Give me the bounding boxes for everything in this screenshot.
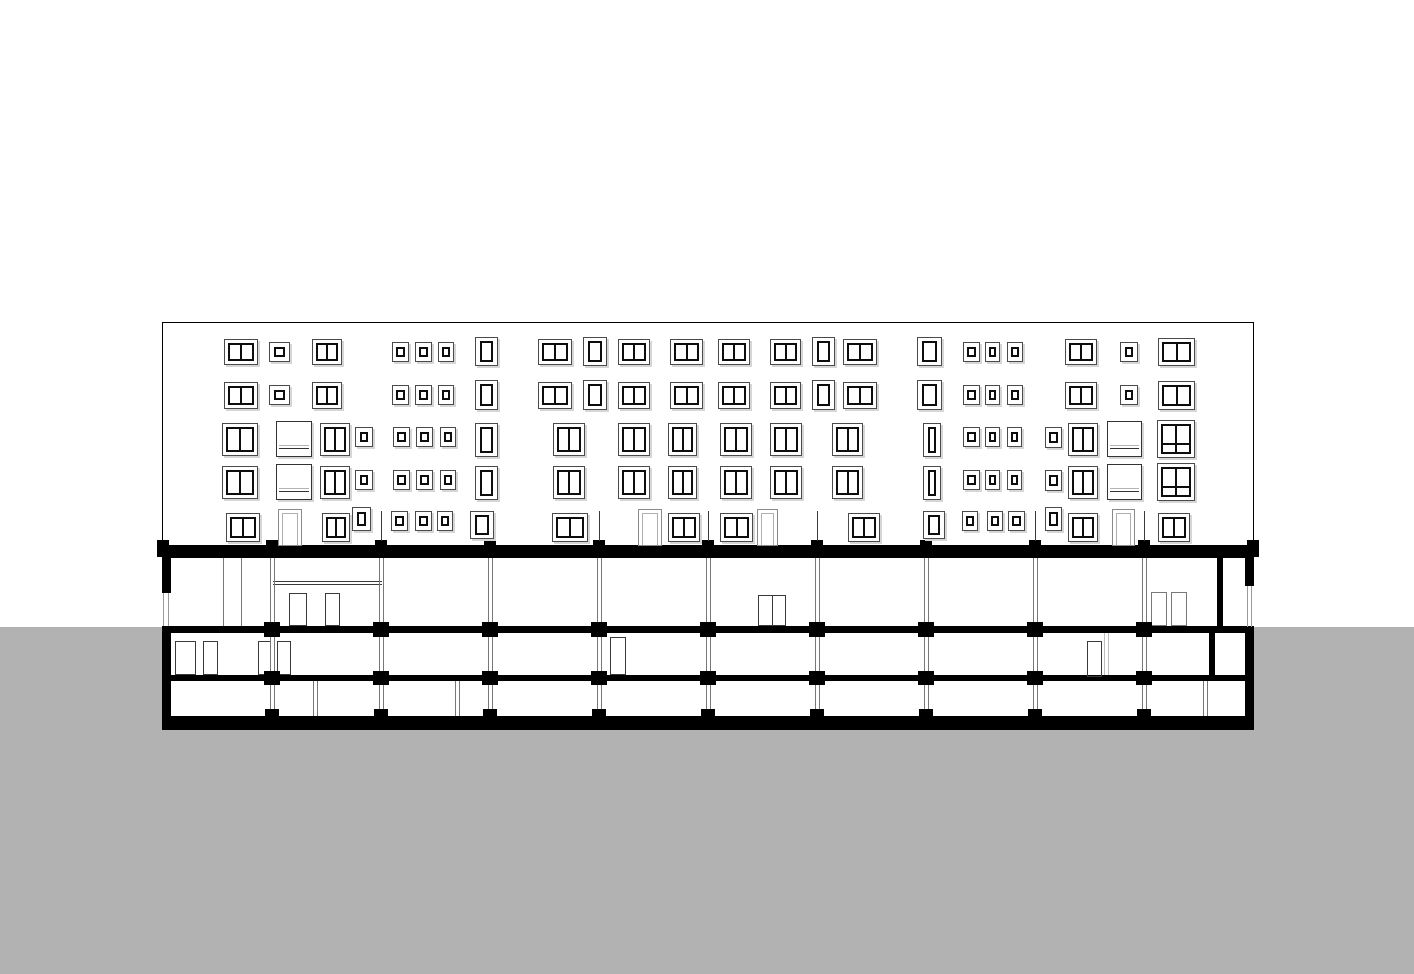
window-pane (1012, 516, 1020, 527)
window-double (1068, 423, 1098, 456)
facade-joint-tick (599, 511, 600, 541)
drawing-canvas (0, 0, 1414, 974)
column-capital (1027, 671, 1043, 685)
window-tall (917, 337, 942, 366)
gf-double-door-leaf (772, 595, 773, 626)
window-pane (442, 347, 450, 358)
facade-base-pier (266, 540, 278, 557)
window-pane (774, 386, 797, 405)
window-pane (360, 475, 369, 486)
right-wall-door-line (1247, 586, 1248, 627)
window-small (1007, 427, 1022, 447)
column (815, 558, 820, 626)
facade-base-pier (702, 540, 714, 557)
window-pane (279, 491, 309, 492)
window-pane (967, 347, 975, 358)
window-pane (542, 386, 568, 405)
window-pane (397, 432, 405, 443)
window-small (269, 385, 290, 405)
window-pane (674, 343, 699, 361)
window-pane (1011, 390, 1019, 401)
b1-door (175, 641, 196, 675)
gf-partition-line (241, 558, 242, 626)
window-double (312, 339, 342, 365)
window-pane (1116, 513, 1131, 545)
window-pane (324, 470, 346, 495)
window-small (1045, 427, 1062, 448)
column-capital (1027, 622, 1043, 637)
window-double (553, 466, 585, 499)
window-pane (967, 432, 975, 443)
column (815, 633, 820, 675)
window-pane (230, 517, 256, 538)
column-capital (918, 622, 934, 637)
window-double (224, 339, 258, 365)
column (1033, 633, 1038, 675)
column-capital (373, 622, 389, 637)
window-double (720, 423, 752, 456)
column (597, 558, 602, 626)
window-pane (922, 341, 937, 362)
window-pane (444, 475, 452, 486)
window-double (222, 466, 258, 499)
window-small (437, 511, 453, 531)
window-pane (542, 343, 568, 361)
window-small (393, 427, 410, 447)
window-pane (622, 386, 646, 405)
window-pane (928, 515, 940, 535)
window-double (553, 423, 585, 456)
column-capital (591, 622, 607, 637)
window-small (1007, 385, 1023, 405)
column (1033, 558, 1038, 626)
window-double (670, 382, 703, 409)
window-double (618, 339, 650, 365)
window-double (320, 466, 350, 499)
window-pane (1162, 385, 1191, 406)
window-double (718, 382, 750, 409)
window-double (618, 466, 650, 499)
window-small (985, 427, 1000, 447)
b2-partition-line (455, 681, 460, 716)
column-capital (483, 709, 497, 716)
window-pane (226, 470, 254, 495)
window-small (415, 342, 432, 362)
gf-partition-wall (1217, 558, 1223, 626)
window-tall (917, 380, 942, 410)
window-pane (836, 470, 859, 495)
column-capital (919, 709, 933, 716)
window-double (1068, 513, 1098, 542)
window-double (1065, 339, 1097, 365)
window-small (985, 342, 1000, 362)
window-tall (475, 423, 498, 457)
window-small (1007, 342, 1023, 362)
window-pane (420, 432, 428, 443)
facade-base-pier (811, 540, 823, 557)
window-double (222, 423, 258, 456)
b2-partition-line (1203, 681, 1208, 716)
window-double (720, 466, 752, 499)
window-double (538, 382, 572, 409)
window-pane (1161, 424, 1191, 454)
window-pane (480, 341, 493, 362)
window-pane (774, 343, 797, 361)
facade-joint-tick (1035, 511, 1036, 541)
window-pane (1072, 470, 1094, 495)
b1-partition-line (1104, 633, 1109, 675)
window-pane (419, 347, 427, 358)
column (270, 633, 275, 675)
window-door (757, 509, 778, 546)
window-small (985, 385, 1000, 405)
window-tall (583, 337, 607, 366)
window-pane (1011, 432, 1018, 443)
window-pane (588, 341, 602, 362)
window-pane (989, 390, 996, 401)
window-double (848, 513, 880, 542)
window-pane (397, 475, 405, 486)
foundation-slab (162, 716, 1254, 730)
window-pane (441, 516, 449, 527)
window-pane (928, 470, 936, 496)
window-small (440, 427, 456, 447)
window-double (832, 423, 863, 456)
window-pane (672, 517, 696, 538)
window-double (1158, 338, 1195, 366)
facade-joint-tick (1144, 511, 1145, 541)
window-pane (396, 347, 404, 358)
column-capital (700, 671, 716, 685)
facade-base-pier (920, 540, 932, 557)
window-double (668, 466, 697, 499)
window-tall (475, 466, 498, 500)
window-small (392, 385, 409, 405)
window-tall (812, 380, 835, 410)
window-pane (228, 386, 254, 405)
window-double (322, 513, 350, 542)
window-double (618, 423, 650, 456)
window-blank (1107, 464, 1142, 500)
column (924, 558, 929, 626)
gf-mezzanine-line (273, 584, 382, 585)
window-pane (274, 390, 285, 401)
window-pane (1011, 347, 1019, 358)
window-double (320, 423, 350, 456)
window-tall (923, 511, 945, 539)
facade-base-pier (157, 540, 169, 557)
window-pane (1161, 467, 1191, 497)
window-pane (1049, 475, 1057, 486)
window-pane (724, 427, 748, 452)
window-double (1158, 513, 1190, 542)
column-capital (374, 709, 388, 716)
window-pane (316, 343, 338, 361)
window-pane (1162, 342, 1191, 362)
window-double (668, 513, 700, 542)
window-double (1158, 381, 1195, 410)
window-pane (316, 386, 338, 405)
window-pane (1125, 347, 1134, 358)
window-pane (360, 432, 369, 443)
window-double (770, 339, 801, 365)
column (706, 558, 711, 626)
column-capital (1136, 622, 1152, 637)
window-small (415, 385, 432, 405)
window-pane (396, 390, 404, 401)
window-pane (967, 475, 975, 486)
window-double (1065, 382, 1097, 409)
facade-joint-tick (708, 511, 709, 541)
window-small (1120, 385, 1138, 405)
column (1142, 558, 1147, 626)
b1-partition-wall (1209, 633, 1215, 675)
window-pane (480, 384, 493, 406)
window-small (963, 385, 980, 405)
window-door (278, 509, 302, 546)
window-pane (420, 475, 428, 486)
column (270, 558, 275, 626)
window-pane (928, 427, 936, 453)
window-small (438, 385, 454, 405)
window-pane (1110, 448, 1139, 449)
window-double (770, 423, 802, 456)
window-pane (991, 516, 999, 527)
window-small (269, 342, 290, 362)
window-pane (847, 343, 873, 361)
window-pane (1072, 427, 1094, 452)
facade-base-pier (484, 540, 496, 557)
column-capital (264, 671, 280, 685)
window-door (638, 509, 662, 546)
window-pane (556, 517, 584, 538)
window-small (415, 511, 432, 531)
facade-joint-tick (381, 511, 382, 541)
facade-joint-tick (817, 511, 818, 541)
window-pane (761, 513, 774, 545)
left-wall-door-line (163, 593, 164, 626)
window-small (1008, 511, 1025, 531)
b1-door (1087, 641, 1102, 677)
window-pane (419, 516, 427, 527)
b2-partition-line (313, 681, 318, 716)
window-pane (852, 517, 876, 538)
column-capital (592, 709, 606, 716)
window-small (355, 470, 373, 490)
column (488, 558, 493, 626)
window-cross (1157, 463, 1195, 501)
window-pane (480, 470, 493, 496)
window-double (618, 382, 650, 409)
window-pane (622, 427, 646, 452)
window-tall (475, 380, 498, 410)
column (488, 633, 493, 675)
right-wall-door-line (1251, 586, 1252, 627)
facade-base-pier (1138, 540, 1150, 557)
window-pane (480, 427, 493, 453)
window-pane (989, 432, 996, 443)
window-pane (672, 427, 693, 452)
window-blank (1107, 421, 1142, 457)
window-double (843, 382, 877, 409)
window-pane (395, 516, 403, 527)
window-pane (1072, 517, 1094, 538)
window-double (843, 339, 877, 365)
window-small (963, 427, 980, 447)
gf-door (1151, 592, 1167, 626)
window-double (770, 382, 801, 409)
facade-base-pier (593, 540, 605, 557)
window-small (416, 427, 433, 447)
gf-door (325, 593, 340, 626)
facade-base-pier (1247, 540, 1259, 557)
window-double (720, 513, 753, 542)
window-pane (1049, 432, 1057, 443)
window-tall (583, 380, 607, 410)
column (706, 633, 711, 675)
window-double (770, 466, 802, 499)
window-double (224, 382, 258, 409)
window-small (393, 470, 410, 490)
column (1142, 633, 1147, 675)
column (597, 633, 602, 675)
column-capital (700, 622, 716, 637)
window-tall (923, 423, 941, 457)
window-pane (966, 516, 974, 527)
window-double (832, 466, 863, 499)
column-capital (1028, 709, 1042, 716)
b1-door (277, 641, 291, 675)
window-blank (276, 421, 312, 457)
window-pane (1011, 475, 1018, 486)
window-small (962, 511, 978, 531)
window-pane (622, 343, 646, 361)
column-capital (809, 622, 825, 637)
window-pane (622, 470, 646, 495)
column-capital (1137, 709, 1151, 716)
window-pane (282, 513, 298, 545)
window-pane (274, 347, 285, 358)
window-cross (1157, 420, 1195, 458)
window-pane (847, 386, 873, 405)
window-pane (774, 427, 798, 452)
window-pane (1162, 517, 1186, 538)
window-double (538, 339, 572, 365)
window-pane (1069, 343, 1093, 361)
window-pane (674, 386, 699, 405)
b1-door (203, 641, 218, 675)
window-tall (812, 337, 835, 366)
window-pane (557, 427, 581, 452)
column-capital (373, 671, 389, 685)
window-pane (324, 427, 346, 452)
window-small (985, 470, 1000, 490)
window-double (552, 513, 588, 542)
window-small (416, 470, 433, 490)
window-double (226, 513, 260, 542)
right-wall-lower (1245, 627, 1254, 730)
window-tall (475, 337, 498, 366)
window-tall (923, 466, 941, 500)
window-pane (326, 517, 346, 538)
window-pane (1069, 386, 1093, 405)
window-pane (922, 384, 937, 406)
window-tall (470, 511, 494, 539)
window-pane (817, 341, 830, 362)
column-capital (701, 709, 715, 716)
column (924, 633, 929, 675)
window-double (670, 339, 703, 365)
window-pane (357, 512, 367, 525)
window-small (440, 470, 456, 490)
window-double (718, 339, 750, 365)
window-small (1120, 342, 1138, 362)
window-pane (475, 515, 489, 535)
window-small (392, 342, 409, 362)
window-double (1068, 466, 1098, 499)
window-pane (642, 513, 658, 545)
column (379, 558, 384, 626)
window-small (1045, 507, 1062, 531)
b1-door (610, 637, 626, 675)
window-pane (774, 470, 798, 495)
facade-base-pier (375, 540, 387, 557)
column-capital (918, 671, 934, 685)
column-capital (809, 671, 825, 685)
gf-partition-line (223, 558, 224, 626)
window-pane (724, 470, 748, 495)
column-capital (482, 622, 498, 637)
window-small (1007, 470, 1022, 490)
window-pane (419, 390, 427, 401)
window-pane (989, 475, 996, 486)
column-capital (810, 709, 824, 716)
window-blank (276, 464, 312, 500)
window-pane (226, 427, 254, 452)
window-pane (722, 386, 746, 405)
window-pane (989, 347, 996, 358)
gf-door (289, 593, 307, 626)
window-pane (724, 517, 749, 538)
window-door (1112, 509, 1135, 546)
window-small (1045, 470, 1062, 491)
gf-door (1171, 592, 1187, 626)
window-pane (444, 432, 452, 443)
column-capital (482, 671, 498, 685)
window-pane (1125, 390, 1134, 401)
window-pane (228, 343, 254, 361)
gf-mezzanine-line (273, 581, 382, 582)
window-pane (1049, 512, 1057, 525)
window-double (312, 382, 342, 409)
window-small (355, 427, 373, 447)
window-pane (442, 390, 450, 401)
column-capital (591, 671, 607, 685)
window-pane (1110, 491, 1139, 492)
window-small (963, 342, 980, 362)
window-pane (672, 470, 693, 495)
window-double (668, 423, 697, 456)
window-small (438, 342, 454, 362)
column-capital (1136, 671, 1152, 685)
window-pane (817, 384, 830, 406)
window-pane (967, 390, 975, 401)
column (379, 633, 384, 675)
window-small (963, 470, 980, 490)
window-pane (836, 427, 859, 452)
window-small (391, 511, 408, 531)
left-wall-lower (162, 626, 171, 730)
